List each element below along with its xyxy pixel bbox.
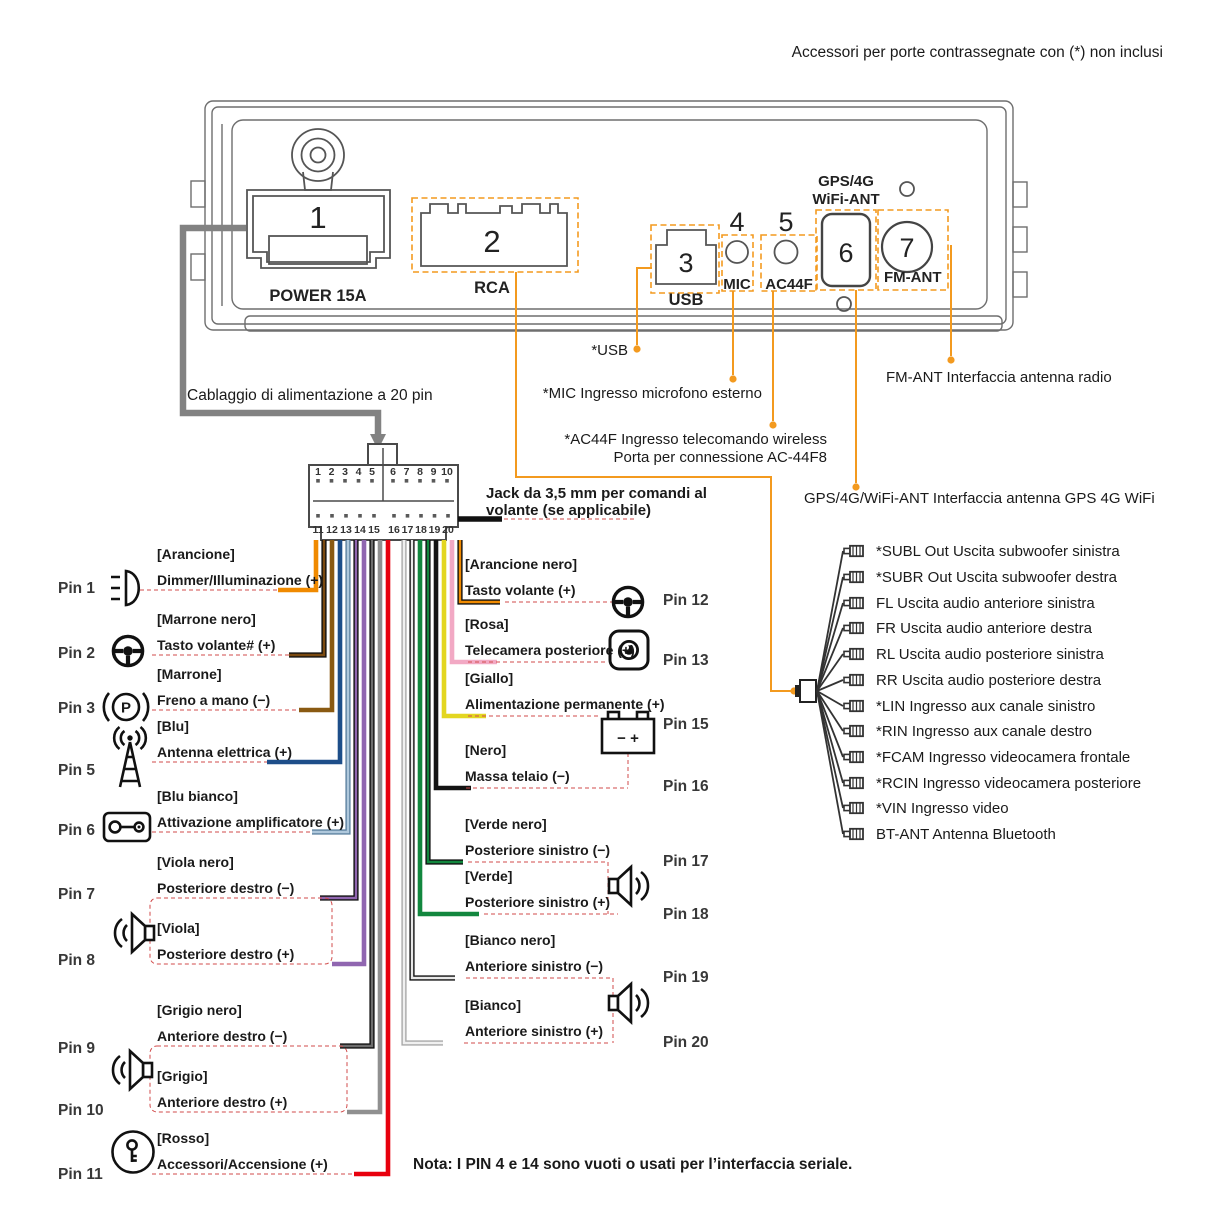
port-usb-label: USB (669, 291, 704, 309)
pin19-name: Pin 19 (663, 969, 709, 986)
connector-pin-number: 14 (354, 524, 366, 536)
swc-jack-label-line2: volante (se applicabile) (486, 502, 651, 519)
connector-pin-number: 4 (356, 466, 362, 478)
pin11-function: Accessori/Accensione (+) (157, 1156, 328, 1172)
pin2-color: [Marrone nero] (157, 611, 256, 627)
port-mic-label: MIC (723, 276, 751, 293)
pin18-name: Pin 18 (663, 906, 709, 923)
rca-label: FL Uscita audio anteriore sinistra (876, 595, 1095, 612)
bottom-note: Nota: I PIN 4 e 14 sono vuoti o usati pe… (413, 1156, 852, 1173)
pin2-name: Pin 2 (58, 645, 95, 662)
connector-pin-number: 9 (431, 466, 437, 478)
chassis-panel (232, 120, 987, 309)
rca-plug-icon (844, 598, 863, 608)
connector-pin-number: 10 (441, 466, 453, 478)
port-mic: 4 MIC (722, 207, 753, 293)
pin13-function: Telecamera posteriore (+) (465, 642, 635, 658)
steering-wheel-icon (613, 587, 642, 616)
battery-icon: − + (602, 712, 654, 753)
rca-label: *LIN Ingresso aux canale sinistro (876, 698, 1095, 715)
pin10-function: Anteriore destro (+) (157, 1094, 287, 1110)
headlight-icon (111, 571, 139, 605)
rca-plug-icon (844, 701, 863, 711)
pin5-function: Antenna elettrica (+) (157, 744, 292, 760)
pin16-name: Pin 16 (663, 778, 709, 795)
rca-plug-icon (844, 803, 863, 813)
rca-plug-icon (844, 829, 863, 839)
rca-label: RL Uscita audio posteriore sinistra (876, 646, 1105, 663)
rca-label: *SUBR Out Uscita subwoofer destra (876, 569, 1118, 586)
head-unit: 1 POWER 15A 2 RCA 3 USB 4 MIC 5 (191, 101, 1027, 331)
top-note: Accessori per porte contrassegnate con (… (792, 44, 1163, 61)
connector-pin-number: 3 (342, 466, 348, 478)
rca-label: *RCIN Ingresso videocamera posteriore (876, 775, 1141, 792)
port-power-label: POWER 15A (269, 287, 366, 305)
pin18-function: Posteriore sinistro (+) (465, 894, 610, 910)
port-rca: 2 RCA (412, 198, 578, 297)
pin17-color: [Verde nero] (465, 816, 547, 832)
connector-pin-number: 5 (369, 466, 375, 478)
pin5-color: [Blu] (157, 718, 189, 734)
connector-pin-number: 20 (442, 524, 454, 536)
gps-callout-label: GPS/4G/WiFi-ANT Interfaccia antenna GPS … (804, 490, 1155, 507)
rca-plug-icon (844, 546, 863, 556)
pin12-function: Tasto volante (+) (465, 582, 576, 598)
port-gps-label-line2: WiFi-ANT (812, 191, 879, 208)
pin1-color: [Arancione] (157, 546, 235, 562)
pin12-color: [Arancione nero] (465, 556, 577, 572)
rca-fan: *SUBL Out Uscita subwoofer sinistra *SUB… (795, 543, 1141, 843)
rca-plug-icon (844, 623, 863, 633)
port-rca-number: 2 (483, 224, 500, 259)
usb-callout-line (637, 268, 652, 345)
pin8-name: Pin 8 (58, 952, 95, 969)
pin9-name: Pin 9 (58, 1040, 95, 1057)
pin15-name: Pin 15 (663, 716, 709, 733)
wiring-diagram: 1 POWER 15A 2 RCA 3 USB 4 MIC 5 (0, 0, 1214, 1214)
connector-pin-number: 12 (326, 524, 338, 536)
rca-plug-icon (844, 752, 863, 762)
pin6-color: [Blu bianco] (157, 788, 238, 804)
pin19-function: Anteriore sinistro (−) (465, 958, 603, 974)
connector-pin-number: 18 (415, 524, 427, 536)
swc-jack-label-line1: Jack da 3,5 mm per comandi al (486, 485, 707, 502)
speaker-icon (609, 867, 648, 905)
pin3-color: [Marrone] (157, 666, 222, 682)
port-usb-number: 3 (678, 248, 693, 278)
rca-label: *VIN Ingresso video (876, 800, 1009, 817)
rca-plug-icon (844, 778, 863, 788)
pin3-function: Freno a mano (−) (157, 692, 270, 708)
pin20-name: Pin 20 (663, 1034, 709, 1051)
port-ac44f: 5 AC44F (761, 207, 817, 293)
amplifier-icon (104, 813, 150, 841)
port-ac44f-number: 5 (778, 207, 793, 237)
pin3-name: Pin 3 (58, 700, 95, 717)
antenna-mount (292, 129, 344, 190)
pin6-name: Pin 6 (58, 822, 95, 839)
port-rca-label: RCA (474, 279, 510, 297)
ac44f-callout-label-line2: Porta per connessione AC-44F8 (614, 449, 827, 466)
rca-label: *FCAM Ingresso videocamera frontale (876, 749, 1130, 766)
connector-pin-number: 1 (315, 466, 321, 478)
pin20-color: [Bianco] (465, 997, 521, 1013)
mount-tab (191, 181, 205, 207)
port-power: 1 POWER 15A (247, 190, 390, 305)
port-usb: 3 USB (651, 225, 719, 309)
speaker-icon (115, 914, 154, 952)
antenna-icon (114, 727, 146, 787)
pin8-color: [Viola] (157, 920, 200, 936)
pin13-name: Pin 13 (663, 652, 709, 669)
port-fm-number: 7 (899, 233, 914, 263)
ac44f-callout-label-line1: *AC44F Ingresso telecomando wireless (564, 431, 827, 448)
rca-plug-icon (844, 649, 863, 659)
rca-plug-icon (844, 726, 863, 736)
pin16-color: [Nero] (465, 742, 506, 758)
port-fm-ant: 7 FM-ANT (878, 210, 948, 290)
pin15-color: [Giallo] (465, 670, 513, 686)
pin17-name: Pin 17 (663, 853, 709, 870)
connector-pin-number: 15 (368, 524, 380, 536)
rca-label: RR Uscita audio posteriore destra (876, 672, 1102, 689)
rca-label: *RIN Ingresso aux canale destro (876, 723, 1092, 740)
mount-tab (1013, 272, 1027, 297)
power-harness-label: Cablaggio di alimentazione a 20 pin (187, 387, 433, 404)
rca-label: FR Uscita audio anteriore destra (876, 620, 1093, 637)
ignition-key-icon (113, 1132, 154, 1173)
pin12-name: Pin 12 (663, 592, 709, 609)
port-gps-label-line1: GPS/4G (818, 173, 874, 190)
pin11-color: [Rosso] (157, 1130, 209, 1146)
screw-hole (900, 182, 914, 196)
connector-pin-number: 19 (429, 524, 441, 536)
rca-bundle-connector (800, 680, 816, 702)
pin1-function: Dimmer/Illuminazione (+) (157, 572, 323, 588)
wiring-diagram-page: 1 POWER 15A 2 RCA 3 USB 4 MIC 5 (0, 0, 1214, 1214)
steering-wheel-icon (113, 636, 142, 665)
connector-pin-number: 16 (388, 524, 400, 536)
pin7-color: [Viola nero] (157, 854, 234, 870)
fm-callout-label: FM-ANT Interfaccia antenna radio (886, 369, 1112, 386)
pin10-name: Pin 10 (58, 1102, 104, 1119)
rca-callout-line (516, 272, 792, 691)
pin1-name: Pin 1 (58, 580, 95, 597)
wires-left (267, 540, 388, 1174)
svg-text:P: P (121, 700, 131, 717)
mount-tab (1013, 227, 1027, 252)
rca-label: BT-ANT Antenna Bluetooth (876, 826, 1056, 843)
parking-brake-icon: P (104, 693, 148, 721)
mic-callout-label: *MIC Ingresso microfono esterno (543, 385, 762, 402)
pin11-name: Pin 11 (58, 1166, 103, 1183)
pin19-color: [Bianco nero] (465, 932, 555, 948)
svg-text:− +: − + (617, 730, 639, 747)
pin17-function: Posteriore sinistro (−) (465, 842, 610, 858)
usb-callout-label: *USB (591, 342, 628, 359)
pin20-function: Anteriore sinistro (+) (465, 1023, 603, 1039)
connector-pin-number: 6 (390, 466, 396, 478)
pin6-function: Attivazione amplificatore (+) (157, 814, 344, 830)
pin7-name: Pin 7 (58, 886, 95, 903)
pin13-color: [Rosa] (465, 616, 509, 632)
port-fm-label: FM-ANT (884, 269, 941, 286)
rca-plug-icon (844, 675, 863, 685)
pin-rows-left: [Arancione] Dimmer/Illuminazione (+) Pin… (58, 546, 344, 1183)
pin5-name: Pin 5 (58, 762, 95, 779)
connector-pin-number: 11 (312, 524, 323, 536)
pin9-color: [Grigio nero] (157, 1002, 242, 1018)
pin7-function: Posteriore destro (−) (157, 880, 294, 896)
connector-pin-number: 8 (417, 466, 423, 478)
connector-pin-number: 2 (329, 466, 335, 478)
pin-rows-right: [Arancione nero] Tasto volante (+) Pin 1… (465, 556, 709, 1051)
connector-pin-number: 7 (404, 466, 410, 478)
pin8-function: Posteriore destro (+) (157, 946, 294, 962)
mount-tab (191, 254, 205, 280)
connector-pin-number: 17 (402, 524, 414, 536)
pin2-function: Tasto volante# (+) (157, 637, 275, 653)
mount-tab (1013, 182, 1027, 207)
pin16-function: Massa telaio (−) (465, 768, 570, 784)
rca-label: *SUBL Out Uscita subwoofer sinistra (876, 543, 1120, 560)
speaker-icon (113, 1051, 152, 1089)
connector-pin-number: 13 (340, 524, 352, 536)
port-power-number: 1 (309, 200, 326, 235)
rca-plug-icon (844, 572, 863, 582)
wire-pin2 (289, 540, 324, 655)
port-ac44f-label: AC44F (765, 276, 813, 293)
speaker-icon (609, 984, 648, 1022)
pin15-function: Alimentazione permanente (+) (465, 696, 665, 712)
pin18-color: [Verde] (465, 868, 512, 884)
port-gps-wifi-ant: GPS/4G WiFi-ANT 6 (812, 173, 879, 290)
pin10-color: [Grigio] (157, 1068, 208, 1084)
port-gps-number: 6 (838, 238, 853, 268)
pin9-function: Anteriore destro (−) (157, 1028, 287, 1044)
port-mic-number: 4 (729, 207, 744, 237)
